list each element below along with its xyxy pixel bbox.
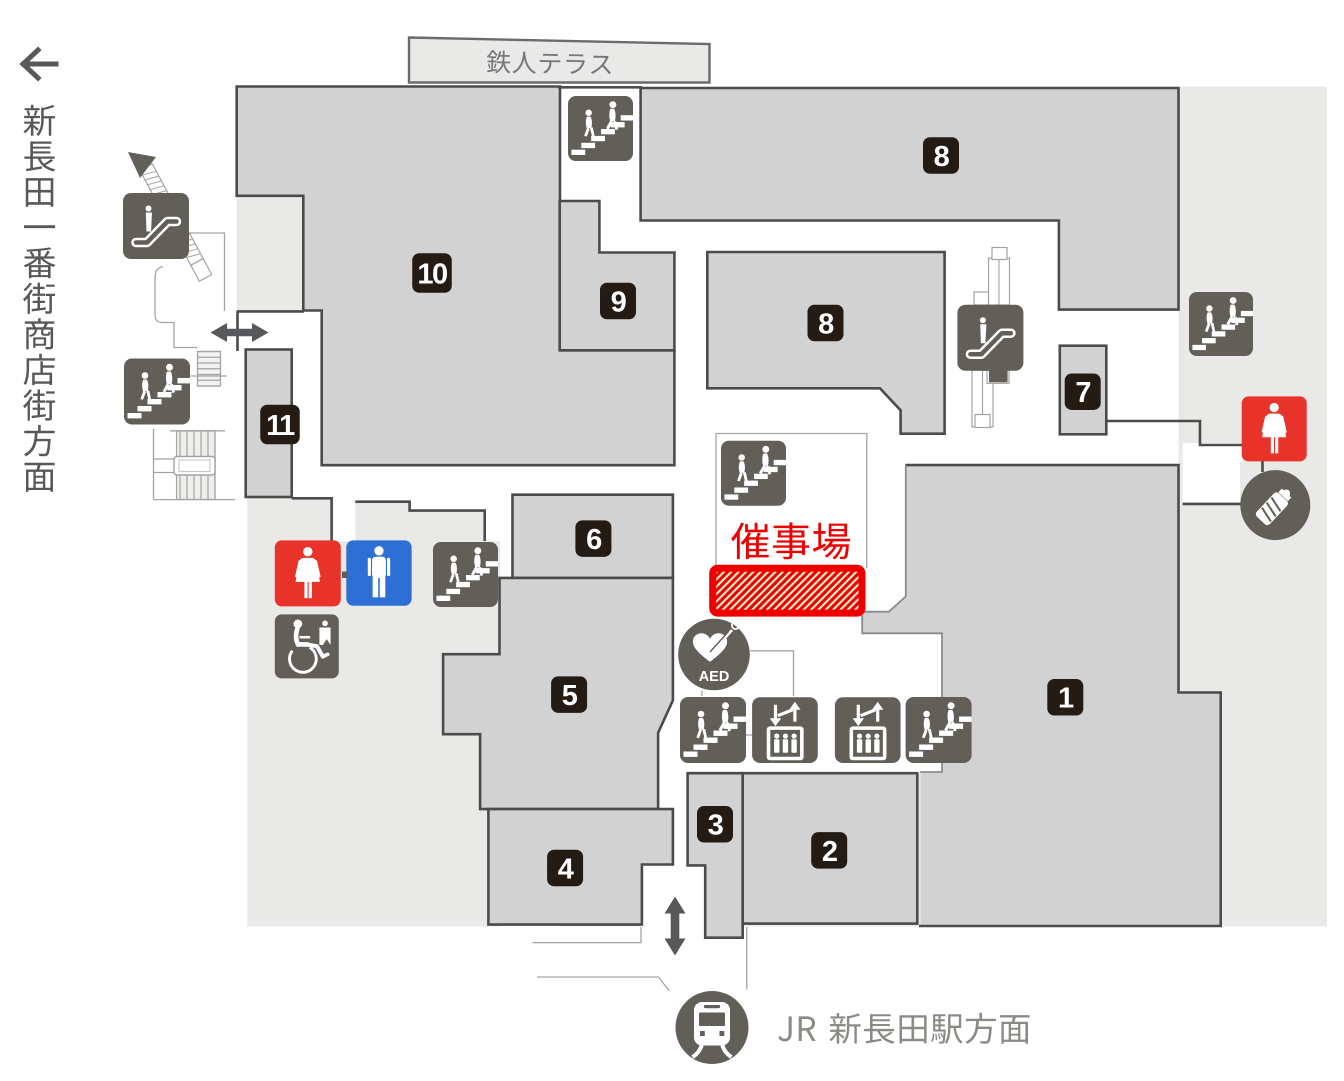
svg-text:6: 6 [586, 524, 602, 556]
svg-text:10: 10 [417, 258, 447, 290]
svg-text:5: 5 [562, 680, 578, 712]
svg-text:2: 2 [822, 836, 837, 868]
svg-text:8: 8 [818, 308, 834, 340]
svg-text:AED: AED [699, 669, 730, 685]
svg-text:4: 4 [558, 853, 574, 885]
svg-text:7: 7 [1075, 377, 1090, 409]
svg-text:1: 1 [1058, 683, 1074, 715]
svg-text:8: 8 [934, 141, 950, 173]
svg-text:9: 9 [611, 286, 627, 318]
svg-text:3: 3 [708, 810, 724, 842]
svg-text:11: 11 [266, 410, 295, 442]
